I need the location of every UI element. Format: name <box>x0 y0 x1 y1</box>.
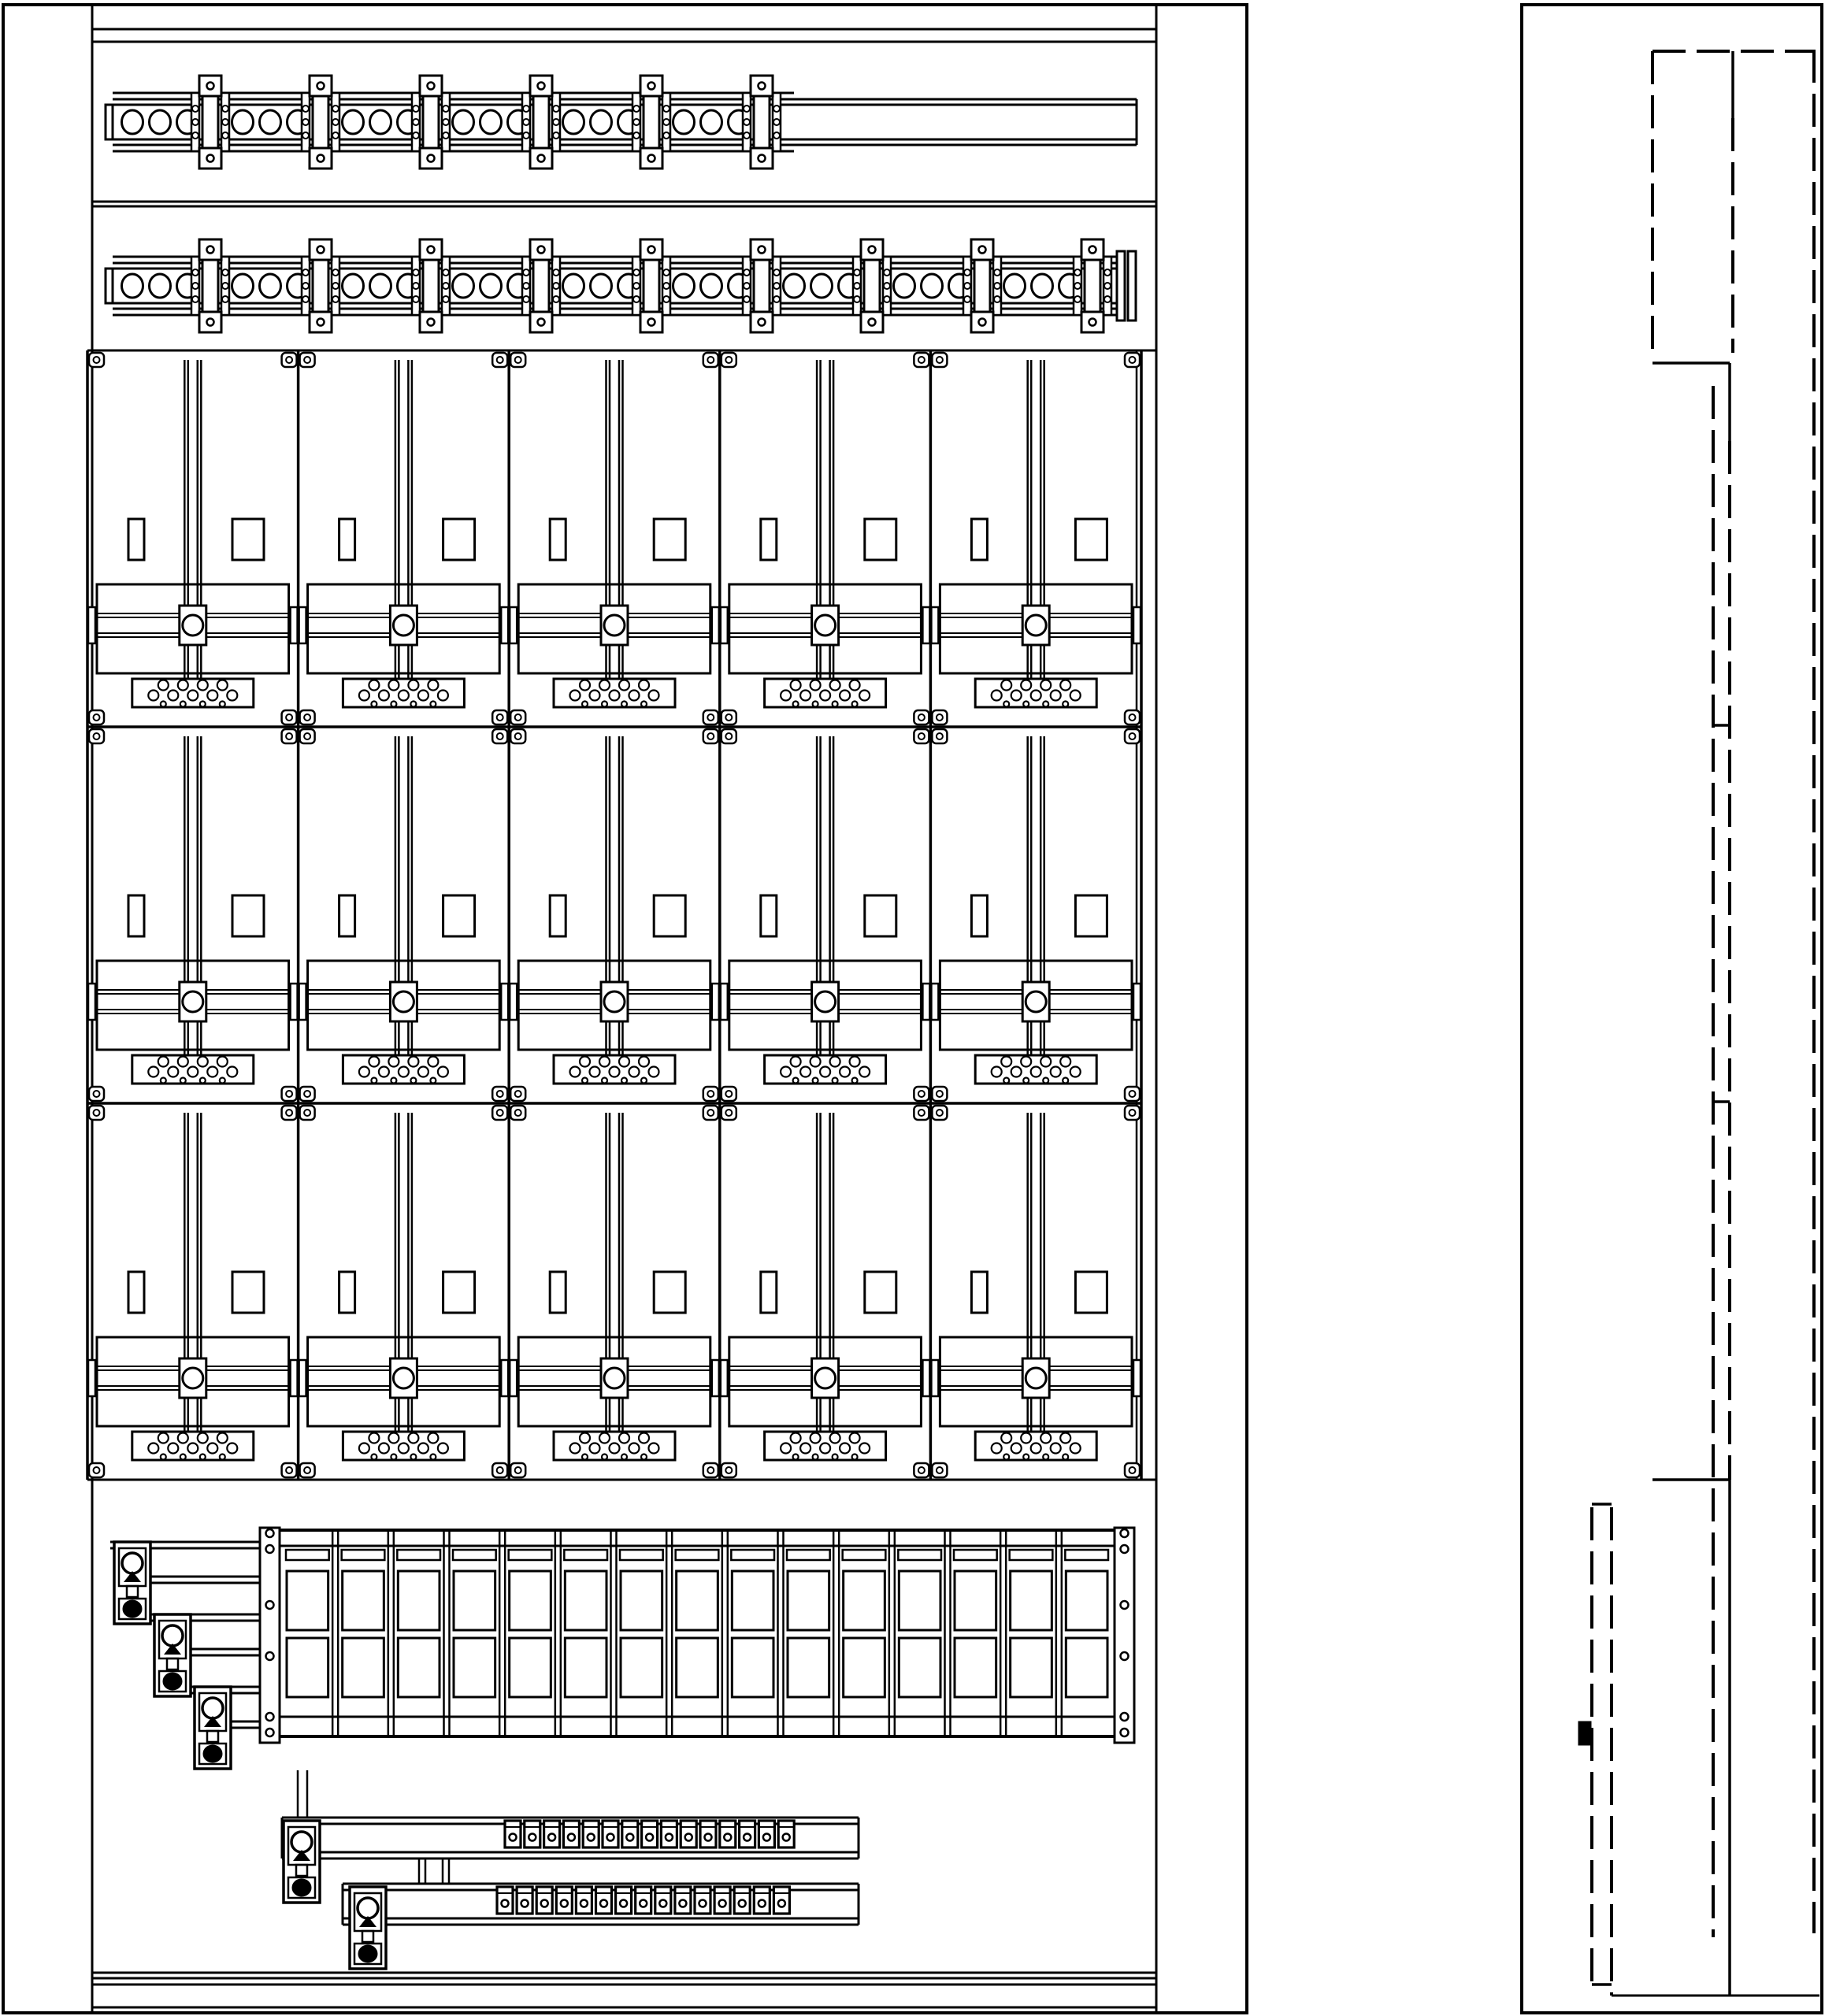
hinge-mark <box>1578 1721 1591 1745</box>
module-slot <box>1056 1530 1108 1736</box>
terminal-block <box>603 1821 618 1847</box>
cutout-wide <box>232 1272 264 1313</box>
corner-bracket <box>282 729 297 743</box>
corner-bracket <box>703 710 718 724</box>
meter-mounting-cross <box>720 961 931 1050</box>
terminal-hole <box>1004 274 1026 298</box>
terminal-block <box>525 1821 540 1847</box>
cutout-wide <box>654 519 685 560</box>
corner-bracket <box>721 1463 736 1477</box>
module-slot <box>666 1530 718 1736</box>
cutout-narrow <box>550 519 566 560</box>
sls-switch <box>284 1821 320 1903</box>
meter-mounting-cross <box>720 1337 931 1426</box>
corner-bracket <box>914 1106 929 1120</box>
cutout-narrow <box>550 895 566 936</box>
terminal-hole <box>563 110 584 134</box>
sls-switch <box>350 1887 386 1969</box>
terminal-block <box>661 1821 677 1847</box>
cutout-wide <box>232 895 264 936</box>
module-slot <box>611 1530 663 1736</box>
meter-cell-r3c1 <box>87 1106 299 1477</box>
corner-bracket <box>492 1463 507 1477</box>
corner-bracket <box>510 1087 525 1101</box>
corner-bracket <box>932 1463 947 1477</box>
rail-mounting-clamp <box>191 76 229 169</box>
terminal-hole <box>122 274 143 298</box>
terminal-hole <box>591 274 612 298</box>
terminal-hole <box>232 274 254 298</box>
terminal-hole <box>122 110 143 134</box>
terminal-hole <box>784 274 805 298</box>
module-slot <box>833 1530 885 1736</box>
rail-mounting-clamp <box>632 239 670 332</box>
cutout-narrow <box>761 1272 777 1313</box>
corner-bracket <box>932 710 947 724</box>
meter-mounting-cross <box>87 1337 299 1426</box>
corner-bracket <box>300 1106 315 1120</box>
corner-bracket <box>510 1463 525 1477</box>
terminal-block <box>642 1821 658 1847</box>
terminal-block <box>759 1821 774 1847</box>
terminal-hole <box>150 274 171 298</box>
terminal-block <box>583 1821 599 1847</box>
terminal-hole <box>343 110 364 134</box>
terminal-block <box>517 1887 532 1914</box>
corner-bracket <box>492 729 507 743</box>
cutout-narrow <box>971 519 987 560</box>
terminal-hole <box>232 110 254 134</box>
terminal-block <box>563 1821 579 1847</box>
corner-bracket <box>300 1463 315 1477</box>
meter-mounting-cross <box>299 961 510 1050</box>
corner-bracket <box>300 729 315 743</box>
corner-bracket <box>703 1087 718 1101</box>
cutout-wide <box>865 1272 896 1313</box>
terminal-hole <box>370 274 391 298</box>
corner-bracket <box>492 353 507 367</box>
terminal-hole <box>811 274 833 298</box>
corner-bracket <box>703 1106 718 1120</box>
side-view <box>1522 5 1822 2013</box>
corner-bracket <box>914 353 929 367</box>
corner-bracket <box>721 1087 736 1101</box>
meter-mounting-cross <box>930 584 1141 673</box>
module-slot <box>889 1530 941 1736</box>
rail-mounting-clamp <box>191 239 229 332</box>
terminal-hole <box>453 274 474 298</box>
terminal-block <box>596 1887 612 1914</box>
corner-bracket <box>510 710 525 724</box>
rail-mounting-clamp <box>302 239 339 332</box>
corner-bracket <box>510 353 525 367</box>
cutout-wide <box>654 1272 685 1313</box>
meter-cell-r1c3 <box>509 353 720 724</box>
cutout-narrow <box>971 895 987 936</box>
meter-mounting-cross <box>509 1337 720 1426</box>
terminal-block <box>576 1887 592 1914</box>
terminal-plate <box>343 679 464 707</box>
corner-bracket <box>721 710 736 724</box>
frame-bracket <box>260 1528 280 1743</box>
meter-mounting-cross <box>299 1337 510 1426</box>
terminal-plate <box>975 679 1096 707</box>
terminal-block <box>536 1887 552 1914</box>
corner-bracket <box>89 1106 104 1120</box>
corner-bracket <box>492 710 507 724</box>
corner-bracket <box>89 353 104 367</box>
corner-bracket <box>492 1087 507 1101</box>
sls-switch <box>114 1542 150 1624</box>
corner-bracket <box>510 1106 525 1120</box>
meter-cabinet-technical-drawing-page <box>0 0 1825 2016</box>
cutout-narrow <box>971 1272 987 1313</box>
meter-cell-r3c3 <box>509 1106 720 1477</box>
cutout-wide <box>1075 895 1107 936</box>
rail-mounting-clamp <box>522 239 560 332</box>
module-slot <box>945 1530 997 1736</box>
terminal-block <box>675 1887 691 1914</box>
terminal-block <box>714 1887 730 1914</box>
cutout-narrow <box>761 895 777 936</box>
terminal-hole <box>453 110 474 134</box>
corner-bracket <box>1125 729 1140 743</box>
corner-bracket <box>721 353 736 367</box>
terminal-hole <box>563 274 584 298</box>
din-module-frame <box>260 1528 1134 1743</box>
rail-mounting-clamp <box>302 76 339 169</box>
cutout-wide <box>443 1272 475 1313</box>
cutout-narrow <box>339 519 355 560</box>
cascade-switch-2 <box>150 1614 260 1696</box>
cutout-narrow <box>339 895 355 936</box>
corner-bracket <box>703 353 718 367</box>
meter-cell-r3c2 <box>299 1106 510 1477</box>
meter-cell-r1c2 <box>299 353 510 724</box>
riser-connector <box>419 1858 449 1884</box>
meter-cell-r1c4 <box>720 353 931 724</box>
meter-cell-r2c2 <box>299 729 510 1101</box>
terminal-block <box>700 1821 716 1847</box>
bottom-rail-lower <box>343 1884 859 1969</box>
module-slot <box>555 1530 607 1736</box>
meter-cell-r1c1 <box>87 353 299 724</box>
corner-bracket <box>932 1106 947 1120</box>
corner-bracket <box>300 1087 315 1101</box>
terminal-hole <box>701 274 722 298</box>
meter-cell-r2c4 <box>720 729 931 1101</box>
cabinet-drawing-canvas <box>0 0 1825 2016</box>
meter-cell-r1c5 <box>930 353 1141 724</box>
corner-bracket <box>914 729 929 743</box>
corner-bracket <box>914 1087 929 1101</box>
sls-switch <box>195 1687 231 1769</box>
rail-mounting-clamp <box>853 239 891 332</box>
rail-mounting-clamp <box>412 76 450 169</box>
meter-mounting-cross <box>87 584 299 673</box>
corner-bracket <box>1125 353 1140 367</box>
rail-end-cap <box>1117 251 1136 321</box>
cutout-wide <box>865 895 896 936</box>
corner-bracket <box>914 1463 929 1477</box>
corner-bracket <box>721 1106 736 1120</box>
meter-cell-r2c3 <box>509 729 720 1101</box>
terminal-hole <box>480 110 502 134</box>
cutout-wide <box>654 895 685 936</box>
corner-bracket <box>282 710 297 724</box>
terminal-plate <box>554 1432 675 1460</box>
cutout-narrow <box>550 1272 566 1313</box>
cutout-narrow <box>761 519 777 560</box>
terminal-block <box>616 1887 632 1914</box>
corner-bracket <box>282 1106 297 1120</box>
meter-mounting-cross <box>930 1337 1141 1426</box>
corner-bracket <box>914 710 929 724</box>
terminal-block <box>655 1887 671 1914</box>
cutout-wide <box>232 519 264 560</box>
cutout-wide <box>1075 1272 1107 1313</box>
terminal-block <box>778 1821 794 1847</box>
module-slot <box>444 1530 496 1736</box>
cutout-wide <box>865 519 896 560</box>
corner-bracket <box>932 729 947 743</box>
module-slot <box>722 1530 774 1736</box>
terminal-block <box>505 1821 521 1847</box>
cascade-switch-3 <box>191 1687 260 1769</box>
terminal-plate <box>765 679 886 707</box>
terminal-plate <box>975 1432 1096 1460</box>
rail-mounting-clamp <box>743 239 781 332</box>
terminal-block <box>754 1887 770 1914</box>
corner-bracket <box>300 353 315 367</box>
meter-cell-r3c5 <box>930 1106 1141 1477</box>
terminal-block <box>720 1821 736 1847</box>
terminal-plate <box>343 1055 464 1084</box>
rail-mounting-clamp <box>963 239 1001 332</box>
terminal-block <box>773 1887 789 1914</box>
corner-bracket <box>703 1463 718 1477</box>
meter-cell-r2c5 <box>930 729 1141 1101</box>
terminal-hole <box>591 110 612 134</box>
terminal-block <box>497 1887 513 1914</box>
module-slot <box>1000 1530 1052 1736</box>
module-slot <box>388 1530 440 1736</box>
terminal-block <box>681 1821 696 1847</box>
corner-bracket <box>703 729 718 743</box>
terminal-hole <box>894 274 915 298</box>
corner-bracket <box>1125 1087 1140 1101</box>
terminal-hole <box>701 110 722 134</box>
cutout-narrow <box>339 1272 355 1313</box>
module-slot <box>332 1530 384 1736</box>
side-outline <box>1522 5 1822 2013</box>
corner-bracket <box>932 1087 947 1101</box>
rail-mounting-clamp <box>743 76 781 169</box>
terminal-hole <box>480 274 502 298</box>
meter-cell-r3c4 <box>720 1106 931 1477</box>
terminal-hole <box>1032 274 1053 298</box>
corner-bracket <box>1125 1106 1140 1120</box>
cutout-wide <box>1075 519 1107 560</box>
corner-bracket <box>282 1087 297 1101</box>
corner-bracket <box>300 710 315 724</box>
meter-cell-r2c1 <box>87 729 299 1101</box>
top-terminal-rail-2 <box>106 239 1136 332</box>
terminal-block <box>544 1821 560 1847</box>
terminal-hole <box>260 110 281 134</box>
cutout-narrow <box>128 895 144 936</box>
corner-bracket <box>510 729 525 743</box>
distribution-section <box>110 1528 1134 1969</box>
terminal-hole <box>260 274 281 298</box>
meter-mounting-cross <box>299 584 510 673</box>
terminal-hole <box>150 110 171 134</box>
terminal-plate <box>554 679 675 707</box>
corner-bracket <box>89 710 104 724</box>
module-slot <box>499 1530 551 1736</box>
meter-mounting-cross <box>87 961 299 1050</box>
corner-bracket <box>89 729 104 743</box>
terminal-plate <box>765 1432 886 1460</box>
meter-panel <box>87 350 1141 1480</box>
corner-bracket <box>932 353 947 367</box>
terminal-block <box>740 1821 755 1847</box>
corner-bracket <box>89 1463 104 1477</box>
terminal-plate <box>132 679 254 707</box>
terminal-block <box>695 1887 710 1914</box>
top-terminal-rail-1 <box>106 76 1137 169</box>
terminal-plate <box>132 1432 254 1460</box>
corner-bracket <box>1125 710 1140 724</box>
meter-mounting-cross <box>720 584 931 673</box>
module-slot <box>286 1550 329 1697</box>
terminal-hole <box>673 274 695 298</box>
cutout-narrow <box>128 519 144 560</box>
cutout-wide <box>443 519 475 560</box>
corner-bracket <box>282 1463 297 1477</box>
corner-bracket <box>492 1106 507 1120</box>
terminal-hole <box>343 274 364 298</box>
terminal-block <box>622 1821 638 1847</box>
cascade-switch-1 <box>110 1542 260 1624</box>
terminal-plate <box>343 1432 464 1460</box>
terminal-hole <box>370 110 391 134</box>
rail-mounting-clamp <box>632 76 670 169</box>
corner-bracket <box>89 1087 104 1101</box>
terminal-hole <box>922 274 943 298</box>
meter-mounting-cross <box>509 961 720 1050</box>
terminal-plate <box>765 1055 886 1084</box>
corner-bracket <box>721 729 736 743</box>
cutout-wide <box>443 895 475 936</box>
door-dashed-lines <box>1592 50 1814 1996</box>
terminal-block <box>734 1887 750 1914</box>
rail-mounting-clamp <box>412 239 450 332</box>
corner-bracket <box>1125 1463 1140 1477</box>
rail-mounting-clamp <box>1074 239 1111 332</box>
terminal-hole <box>673 110 695 134</box>
module-slot <box>778 1530 830 1736</box>
terminal-plate <box>975 1055 1096 1084</box>
terminal-block <box>636 1887 651 1914</box>
meter-mounting-cross <box>930 961 1141 1050</box>
meter-mounting-cross <box>509 584 720 673</box>
corner-bracket <box>282 353 297 367</box>
riser-connector <box>298 1770 307 1818</box>
front-view <box>3 5 1247 2013</box>
terminal-block <box>556 1887 572 1914</box>
frame-bracket <box>1115 1528 1134 1743</box>
rail-mounting-clamp <box>522 76 560 169</box>
cutout-narrow <box>128 1272 144 1313</box>
sls-switch <box>154 1614 191 1696</box>
terminal-plate <box>554 1055 675 1084</box>
terminal-plate <box>132 1055 254 1084</box>
